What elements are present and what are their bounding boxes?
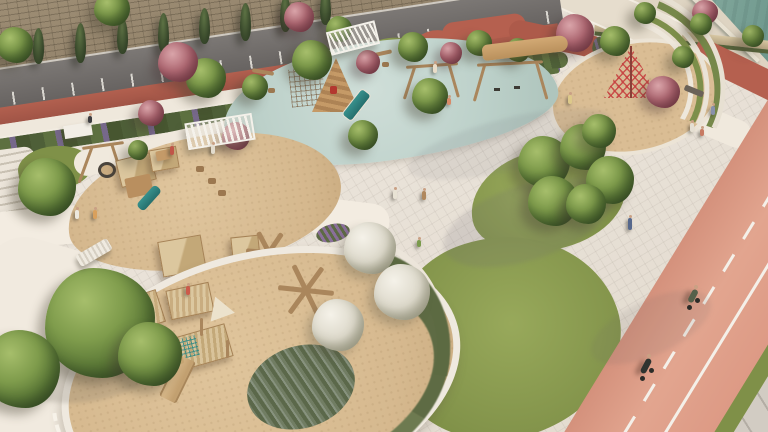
tree <box>634 2 656 24</box>
spring-rider <box>268 88 275 93</box>
swing-seat <box>494 88 500 91</box>
pedestrian <box>211 145 215 154</box>
pedestrian <box>422 191 426 200</box>
rider-head <box>694 285 698 289</box>
tree <box>18 158 76 216</box>
pedestrian <box>170 146 174 155</box>
spring-rider <box>208 178 216 184</box>
pedestrian <box>711 106 715 115</box>
tree <box>672 46 694 68</box>
person-on-bench <box>88 116 92 123</box>
tree <box>742 25 764 47</box>
red-leaf-tree <box>138 100 164 126</box>
rope-pyramid-mast <box>630 46 632 98</box>
bike-wheel <box>687 305 692 310</box>
pedestrian <box>393 190 397 199</box>
spring-rider <box>382 62 389 67</box>
tire-spinner <box>98 162 116 178</box>
bike-wheel <box>649 368 654 373</box>
pedestrian <box>628 218 632 230</box>
pyramid-red-marker <box>330 86 337 94</box>
tree <box>398 32 428 62</box>
rider-head <box>647 354 651 358</box>
pedestrian <box>690 123 694 132</box>
tree <box>118 322 182 386</box>
structure-post <box>226 340 229 358</box>
pedestrian <box>93 210 97 219</box>
child <box>700 129 704 136</box>
cyclist <box>684 284 708 314</box>
bike-wheel <box>695 298 700 303</box>
bike-wheel <box>640 376 645 381</box>
child-on-structure <box>186 286 190 295</box>
red-leaf-tree <box>356 50 380 74</box>
park-rendering <box>0 0 768 432</box>
pedestrian <box>75 210 79 219</box>
cypress-tree <box>199 8 210 44</box>
tree <box>412 78 448 114</box>
pedestrian <box>568 95 572 104</box>
tree <box>690 13 712 35</box>
red-leaf-tree <box>158 42 198 82</box>
tree <box>292 40 332 80</box>
tree <box>242 74 268 100</box>
swing-seat <box>514 86 520 89</box>
tree <box>128 140 148 160</box>
blossom-tree <box>312 299 364 351</box>
red-leaf-tree <box>440 42 462 64</box>
spring-rider <box>196 166 204 172</box>
cyclist <box>636 352 662 386</box>
child <box>417 240 421 247</box>
tree <box>0 27 33 63</box>
tree <box>600 26 630 56</box>
tree <box>582 114 616 148</box>
cypress-tree <box>33 28 44 64</box>
pedestrian <box>433 64 437 73</box>
child <box>447 98 451 105</box>
spring-rider <box>218 190 226 196</box>
blossom-tree <box>374 264 430 320</box>
tree <box>566 184 606 224</box>
red-leaf-tree <box>284 2 314 32</box>
tree <box>348 120 378 150</box>
red-leaf-tree <box>646 76 680 108</box>
structure-post <box>200 318 203 336</box>
